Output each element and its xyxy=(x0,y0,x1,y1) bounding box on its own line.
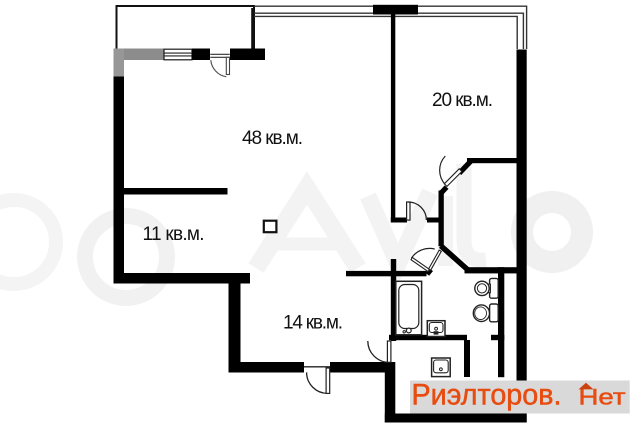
svg-text:14 кв.м.: 14 кв.м. xyxy=(283,313,343,334)
svg-text:Риэлторов.: Риэлторов. xyxy=(412,379,562,412)
svg-text:20 кв.м.: 20 кв.м. xyxy=(432,90,493,111)
svg-text:11 кв.м.: 11 кв.м. xyxy=(143,224,205,245)
svg-text:48 кв.м.: 48 кв.м. xyxy=(242,128,303,149)
